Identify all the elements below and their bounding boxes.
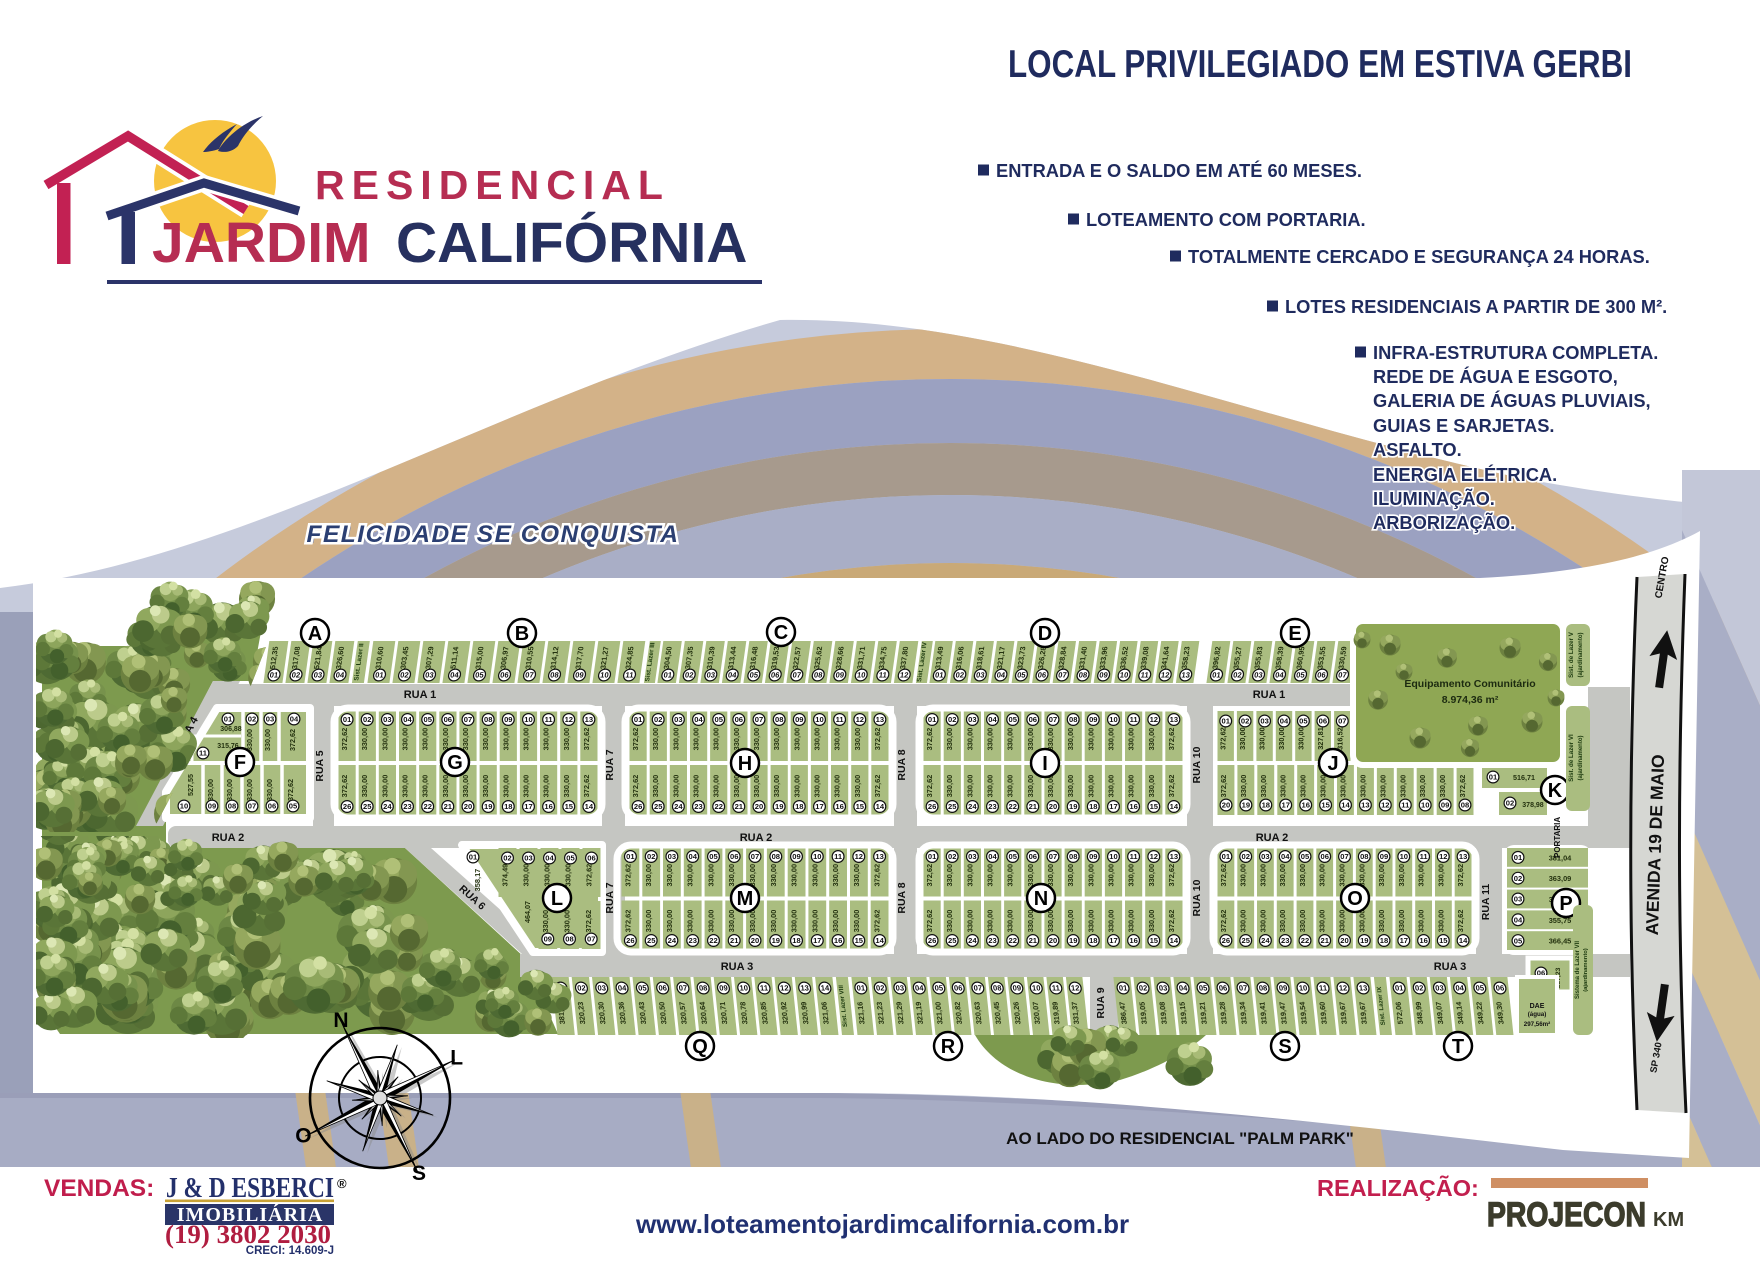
svg-text:01: 01 (224, 715, 233, 724)
svg-text:20: 20 (1222, 801, 1230, 810)
svg-text:19: 19 (1069, 936, 1077, 945)
svg-text:04: 04 (545, 854, 554, 863)
svg-text:330,00: 330,00 (1046, 910, 1055, 933)
svg-text:330,00: 330,00 (831, 910, 840, 933)
svg-text:330,00: 330,00 (245, 779, 254, 801)
svg-text:18: 18 (795, 802, 803, 811)
svg-text:R: R (941, 1036, 956, 1058)
svg-text:ENERGIA ELÉTRICA.: ENERGIA ELÉTRICA. (1373, 464, 1557, 485)
svg-text:03: 03 (425, 671, 435, 680)
svg-text:01: 01 (928, 852, 937, 861)
svg-text:372,62: 372,62 (631, 775, 640, 798)
svg-text:02: 02 (1241, 717, 1249, 726)
svg-text:06: 06 (587, 854, 595, 863)
svg-text:RUA 9: RUA 9 (1095, 987, 1107, 1018)
svg-text:02: 02 (400, 671, 410, 680)
svg-text:10: 10 (1032, 984, 1041, 993)
svg-text:Sistema de Lazer VII: Sistema de Lazer VII (1575, 941, 1581, 999)
svg-text:330,00: 330,00 (1239, 775, 1248, 798)
svg-text:330,00: 330,00 (1046, 864, 1055, 887)
svg-text:09: 09 (1380, 852, 1388, 861)
svg-text:04: 04 (988, 852, 997, 861)
svg-text:330,00: 330,00 (1107, 910, 1116, 933)
svg-text:330,00: 330,00 (522, 775, 531, 798)
svg-text:12: 12 (1150, 852, 1158, 861)
svg-text:330,00: 330,00 (986, 864, 995, 887)
svg-text:07: 07 (751, 852, 759, 861)
svg-text:09: 09 (1089, 852, 1097, 861)
svg-text:10: 10 (1109, 852, 1117, 861)
svg-text:07: 07 (678, 984, 687, 993)
svg-text:03: 03 (975, 671, 985, 680)
svg-text:18: 18 (1380, 936, 1388, 945)
svg-text:330,00: 330,00 (1046, 728, 1055, 751)
svg-text:14: 14 (1341, 801, 1350, 810)
svg-text:330,00: 330,00 (1357, 910, 1366, 933)
svg-text:02: 02 (948, 715, 956, 724)
svg-text:330,00: 330,00 (1026, 864, 1035, 887)
svg-text:17: 17 (815, 802, 823, 811)
svg-text:330,00: 330,00 (461, 728, 470, 751)
svg-text:372,62: 372,62 (1167, 728, 1176, 751)
svg-text:13: 13 (585, 715, 593, 724)
svg-text:330,00: 330,00 (727, 910, 736, 933)
svg-text:06: 06 (1037, 671, 1047, 680)
svg-text:11: 11 (1420, 852, 1429, 861)
svg-text:17: 17 (1400, 936, 1408, 945)
svg-text:E: E (1288, 623, 1301, 645)
svg-text:S: S (1278, 1036, 1291, 1058)
svg-text:20: 20 (755, 802, 763, 811)
svg-text:19: 19 (772, 936, 780, 945)
svg-text:330,00: 330,00 (665, 864, 674, 887)
svg-text:05: 05 (709, 852, 718, 861)
svg-text:09: 09 (1012, 984, 1021, 993)
svg-text:19: 19 (484, 802, 492, 811)
svg-text:N: N (1034, 888, 1048, 910)
svg-text:330,00: 330,00 (732, 728, 741, 751)
svg-text:08: 08 (1078, 671, 1088, 680)
svg-text:330,00: 330,00 (1147, 910, 1156, 933)
svg-text:372,62: 372,62 (623, 910, 632, 933)
svg-text:13: 13 (875, 852, 883, 861)
svg-text:330,00: 330,00 (1127, 864, 1136, 887)
svg-text:330,00: 330,00 (1006, 775, 1015, 798)
svg-text:REALIZAÇÃO:: REALIZAÇÃO: (1317, 1174, 1479, 1201)
svg-text:17: 17 (1109, 936, 1117, 945)
svg-text:04: 04 (1280, 717, 1289, 726)
svg-text:330,00: 330,00 (1258, 727, 1267, 750)
svg-text:330,00: 330,00 (1318, 864, 1327, 887)
svg-text:17: 17 (1109, 802, 1117, 811)
svg-text:RUA 1: RUA 1 (1253, 689, 1286, 701)
svg-text:CALIFÓRNIA: CALIFÓRNIA (396, 211, 747, 275)
svg-text:372,62: 372,62 (873, 728, 882, 751)
svg-text:02: 02 (363, 715, 371, 724)
svg-text:12: 12 (565, 715, 573, 724)
svg-text:378,98: 378,98 (1522, 802, 1544, 809)
svg-text:11: 11 (1130, 852, 1139, 861)
svg-text:372,62: 372,62 (1219, 727, 1228, 750)
svg-text:330,00: 330,00 (1338, 910, 1347, 933)
svg-text:330,00: 330,00 (1238, 727, 1247, 750)
svg-text:15: 15 (565, 802, 574, 811)
svg-text:10: 10 (1298, 984, 1307, 993)
svg-text:330,00: 330,00 (831, 864, 840, 887)
svg-text:372,62: 372,62 (340, 775, 349, 798)
svg-text:04: 04 (403, 715, 412, 724)
svg-text:07: 07 (1338, 717, 1346, 726)
svg-text:13: 13 (1459, 852, 1467, 861)
svg-text:B: B (515, 623, 529, 645)
svg-text:330,00: 330,00 (543, 864, 552, 887)
svg-text:330,00: 330,00 (522, 864, 531, 887)
svg-text:14: 14 (876, 802, 885, 811)
svg-text:372,62: 372,62 (873, 910, 882, 933)
svg-text:11: 11 (1401, 801, 1410, 810)
svg-text:08: 08 (698, 984, 707, 993)
svg-text:330,00: 330,00 (1026, 728, 1035, 751)
svg-text:330,00: 330,00 (748, 910, 757, 933)
svg-text:330,00: 330,00 (790, 910, 799, 933)
svg-text:01: 01 (626, 852, 635, 861)
svg-text:(ajardinamento): (ajardinamento) (1578, 632, 1584, 677)
svg-text:02: 02 (876, 984, 885, 993)
svg-text:C: C (774, 622, 788, 644)
svg-text:330,00: 330,00 (541, 910, 550, 933)
svg-text:330,00: 330,00 (1418, 775, 1427, 798)
svg-text:330,00: 330,00 (707, 864, 716, 887)
svg-text:20: 20 (751, 936, 759, 945)
svg-text:330,00: 330,00 (965, 775, 974, 798)
svg-text:330,00: 330,00 (1107, 864, 1116, 887)
svg-text:20: 20 (1049, 802, 1057, 811)
svg-text:08: 08 (550, 671, 560, 680)
svg-text:06: 06 (954, 984, 963, 993)
svg-text:LOCAL PRIVILEGIADO EM ESTIVA G: LOCAL PRIVILEGIADO EM ESTIVA GERBI (1008, 43, 1632, 86)
svg-text:330,00: 330,00 (665, 910, 674, 933)
svg-text:330,00: 330,00 (1086, 910, 1095, 933)
svg-text:372,62: 372,62 (925, 864, 934, 887)
svg-text:S: S (412, 1162, 426, 1185)
svg-text:330,00: 330,00 (1319, 775, 1328, 798)
svg-text:05: 05 (1008, 852, 1017, 861)
svg-text:14: 14 (1170, 802, 1179, 811)
svg-text:10: 10 (815, 715, 823, 724)
svg-text:330,00: 330,00 (752, 775, 761, 798)
svg-text:(ajardinamento): (ajardinamento) (1583, 948, 1589, 992)
svg-text:12: 12 (1439, 852, 1447, 861)
svg-text:05: 05 (289, 802, 298, 811)
svg-text:12: 12 (855, 852, 863, 861)
svg-text:06: 06 (1029, 852, 1037, 861)
svg-text:06: 06 (444, 715, 452, 724)
svg-text:LOTES RESIDENCIAIS A PARTIR DE: LOTES RESIDENCIAIS A PARTIR DE 300 M². (1285, 296, 1667, 317)
svg-text:25: 25 (654, 802, 663, 811)
svg-text:K: K (1548, 780, 1563, 802)
svg-text:17: 17 (1281, 801, 1289, 810)
svg-text:08: 08 (813, 671, 823, 680)
svg-text:07: 07 (1058, 671, 1068, 680)
svg-text:02: 02 (1241, 852, 1249, 861)
svg-text:07: 07 (1238, 984, 1247, 993)
svg-text:330,00: 330,00 (1258, 864, 1267, 887)
svg-text:330,00: 330,00 (563, 910, 572, 933)
svg-text:G: G (447, 752, 463, 774)
svg-text:330,00: 330,00 (401, 775, 410, 798)
svg-text:330,00: 330,00 (564, 864, 573, 887)
svg-text:10: 10 (1400, 852, 1408, 861)
svg-text:330,00: 330,00 (1279, 775, 1288, 798)
svg-text:I: I (1042, 753, 1048, 775)
svg-text:07: 07 (1049, 852, 1057, 861)
svg-text:330,00: 330,00 (748, 864, 757, 887)
svg-text:01: 01 (928, 715, 937, 724)
svg-text:05: 05 (714, 715, 723, 724)
svg-text:01: 01 (1221, 717, 1230, 726)
svg-text:330,00: 330,00 (686, 864, 695, 887)
svg-text:RUA 8: RUA 8 (896, 749, 908, 780)
svg-text:372,62: 372,62 (631, 728, 640, 751)
svg-text:14: 14 (585, 802, 594, 811)
svg-text:23: 23 (988, 936, 996, 945)
svg-text:05: 05 (1299, 717, 1308, 726)
svg-text:15: 15 (1321, 801, 1330, 810)
svg-text:330,00: 330,00 (651, 728, 660, 751)
svg-text:ASFALTO.: ASFALTO. (1373, 439, 1462, 460)
svg-text:24: 24 (674, 802, 683, 811)
svg-text:P: P (1559, 893, 1572, 915)
svg-text:KM: KM (1653, 1209, 1684, 1231)
svg-text:10: 10 (1109, 715, 1117, 724)
svg-text:372,62: 372,62 (1456, 910, 1465, 933)
svg-text:JARDIM: JARDIM (152, 211, 371, 275)
svg-text:330,00: 330,00 (1296, 727, 1305, 750)
svg-text:12: 12 (856, 715, 864, 724)
svg-text:12: 12 (780, 984, 789, 993)
svg-text:15: 15 (855, 936, 864, 945)
svg-text:10: 10 (856, 671, 866, 680)
svg-text:GALERIA DE ÁGUAS PLUVIAIS,: GALERIA DE ÁGUAS PLUVIAIS, (1373, 390, 1651, 411)
svg-text:330,00: 330,00 (1397, 910, 1406, 933)
svg-text:330,00: 330,00 (712, 775, 721, 798)
svg-text:04: 04 (290, 715, 299, 724)
svg-text:330,00: 330,00 (206, 779, 215, 801)
svg-text:10: 10 (813, 852, 821, 861)
svg-text:03: 03 (1158, 984, 1167, 993)
svg-text:FELICIDADE SE CONQUISTA: FELICIDADE SE CONQUISTA (307, 521, 680, 548)
svg-text:02: 02 (684, 671, 694, 680)
svg-text:08: 08 (775, 715, 783, 724)
svg-text:22: 22 (423, 802, 431, 811)
svg-text:19: 19 (1069, 802, 1077, 811)
svg-text:17: 17 (813, 936, 821, 945)
svg-text:08: 08 (1258, 984, 1267, 993)
svg-text:366,45: 366,45 (1549, 937, 1572, 946)
svg-text:330,00: 330,00 (562, 728, 571, 751)
svg-text:20: 20 (1340, 936, 1348, 945)
svg-text:12: 12 (1071, 984, 1080, 993)
svg-text:06: 06 (1495, 984, 1504, 993)
svg-text:14: 14 (1170, 936, 1179, 945)
svg-text:01: 01 (343, 715, 352, 724)
svg-text:24: 24 (383, 802, 392, 811)
svg-text:330,00: 330,00 (1239, 864, 1248, 887)
svg-text:L: L (551, 888, 563, 910)
svg-text:24: 24 (668, 936, 677, 945)
svg-text:372,62: 372,62 (286, 779, 295, 801)
svg-text:25: 25 (948, 802, 957, 811)
svg-text:306,88: 306,88 (220, 726, 242, 733)
svg-text:09: 09 (835, 671, 845, 680)
svg-text:330,00: 330,00 (501, 728, 510, 751)
svg-text:RUA 3: RUA 3 (721, 961, 754, 973)
svg-text:J: J (1327, 753, 1338, 775)
svg-text:09: 09 (795, 715, 803, 724)
svg-text:13: 13 (876, 715, 884, 724)
svg-text:330,00: 330,00 (1278, 864, 1287, 887)
svg-text:330,00: 330,00 (813, 728, 822, 751)
svg-text:23: 23 (1281, 936, 1289, 945)
svg-text:372,62: 372,62 (1167, 910, 1176, 933)
svg-text:330,00: 330,00 (1318, 910, 1327, 933)
svg-text:330,00: 330,00 (769, 864, 778, 887)
svg-text:O: O (1347, 888, 1363, 910)
svg-text:(água): (água) (1528, 1011, 1547, 1018)
svg-text:372,62: 372,62 (873, 775, 882, 798)
svg-text:07: 07 (587, 935, 595, 944)
svg-text:03: 03 (1435, 984, 1444, 993)
svg-text:19: 19 (1242, 801, 1250, 810)
svg-text:TOTALMENTE CERCADO E SEGURANÇA: TOTALMENTE CERCADO E SEGURANÇA 24 HORAS. (1188, 246, 1650, 267)
svg-text:07: 07 (755, 715, 763, 724)
svg-text:330,00: 330,00 (1436, 910, 1445, 933)
svg-text:12: 12 (1150, 715, 1158, 724)
svg-text:04: 04 (688, 852, 697, 861)
svg-text:02: 02 (248, 715, 256, 724)
svg-text:08: 08 (1461, 801, 1469, 810)
svg-text:02: 02 (577, 984, 586, 993)
svg-text:330,00: 330,00 (481, 728, 490, 751)
svg-text:03: 03 (968, 715, 976, 724)
svg-text:02: 02 (1415, 984, 1424, 993)
svg-text:01: 01 (1514, 853, 1523, 862)
svg-text:21: 21 (444, 802, 453, 811)
svg-text:330,00: 330,00 (945, 728, 954, 751)
svg-text:Sist. de Lazer V: Sist. de Lazer V (1568, 631, 1575, 678)
svg-text:04: 04 (1281, 852, 1290, 861)
svg-text:06: 06 (500, 671, 510, 680)
svg-text:11: 11 (199, 749, 208, 758)
svg-text:25: 25 (1241, 936, 1250, 945)
svg-text:19: 19 (1360, 936, 1368, 945)
svg-text:330,00: 330,00 (752, 728, 761, 751)
svg-text:330,00: 330,00 (945, 864, 954, 887)
svg-text:330,00: 330,00 (792, 728, 801, 751)
svg-text:05: 05 (1008, 715, 1017, 724)
svg-text:03: 03 (968, 852, 976, 861)
svg-text:372,62: 372,62 (582, 775, 591, 798)
svg-text:330,00: 330,00 (1438, 775, 1447, 798)
svg-text:26: 26 (343, 802, 351, 811)
svg-text:02: 02 (955, 671, 965, 680)
svg-text:18: 18 (792, 936, 800, 945)
svg-text:RUA 5: RUA 5 (314, 750, 326, 781)
svg-text:330,00: 330,00 (1377, 910, 1386, 933)
svg-text:330,00: 330,00 (945, 775, 954, 798)
svg-text:AO LADO DO RESIDENCIAL "PALM P: AO LADO DO RESIDENCIAL "PALM PARK" (1006, 1129, 1354, 1148)
svg-text:03: 03 (524, 854, 532, 863)
svg-text:09: 09 (1441, 801, 1449, 810)
svg-text:J & D ESBERCI: J & D ESBERCI (166, 1173, 334, 1204)
svg-text:372,62: 372,62 (288, 729, 297, 751)
svg-text:330,00: 330,00 (707, 910, 716, 933)
svg-text:330,00: 330,00 (1298, 864, 1307, 887)
svg-text:330,00: 330,00 (1086, 775, 1095, 798)
svg-text:07: 07 (792, 671, 802, 680)
svg-text:330,00: 330,00 (501, 775, 510, 798)
svg-text:17: 17 (524, 802, 532, 811)
svg-text:330,00: 330,00 (965, 728, 974, 751)
svg-text:LOTEAMENTO COM PORTARIA.: LOTEAMENTO COM PORTARIA. (1086, 209, 1366, 230)
svg-text:21: 21 (730, 936, 739, 945)
svg-text:330,00: 330,00 (421, 728, 430, 751)
svg-text:RUA 10: RUA 10 (1191, 879, 1203, 916)
svg-text:372,62: 372,62 (340, 728, 349, 751)
svg-text:13: 13 (1181, 671, 1191, 680)
svg-text:RUA 8: RUA 8 (896, 882, 908, 913)
svg-text:T: T (1452, 1036, 1464, 1058)
svg-text:330,00: 330,00 (1066, 910, 1075, 933)
svg-text:10: 10 (600, 671, 610, 680)
svg-text:08: 08 (1069, 715, 1077, 724)
svg-text:03: 03 (895, 984, 904, 993)
svg-text:07: 07 (464, 715, 472, 724)
svg-text:N: N (333, 1009, 348, 1032)
svg-text:330,00: 330,00 (833, 775, 842, 798)
svg-text:330,00: 330,00 (732, 775, 741, 798)
svg-text:Sist. de Lazer VI: Sist. de Lazer VI (1568, 734, 1575, 782)
svg-text:PORTARIA: PORTARIA (1553, 817, 1562, 858)
svg-text:24: 24 (968, 802, 977, 811)
svg-text:06: 06 (1319, 717, 1327, 726)
svg-text:11: 11 (1130, 715, 1139, 724)
svg-text:10: 10 (1421, 801, 1429, 810)
svg-text:INFRA-ESTRUTURA COMPLETA.: INFRA-ESTRUTURA COMPLETA. (1373, 342, 1658, 363)
svg-text:21: 21 (1029, 936, 1038, 945)
svg-text:464,07: 464,07 (523, 901, 532, 923)
svg-text:330,00: 330,00 (1006, 728, 1015, 751)
svg-text:RUA 1: RUA 1 (404, 689, 437, 701)
svg-text:330,00: 330,00 (441, 775, 450, 798)
svg-text:06: 06 (735, 715, 743, 724)
svg-text:10: 10 (1119, 671, 1129, 680)
svg-text:16: 16 (1419, 936, 1427, 945)
svg-text:330,00: 330,00 (792, 775, 801, 798)
svg-text:06: 06 (268, 802, 276, 811)
svg-text:21: 21 (735, 802, 744, 811)
svg-text:330,00: 330,00 (360, 775, 369, 798)
svg-text:12: 12 (899, 671, 909, 680)
svg-text:09: 09 (792, 852, 800, 861)
svg-text:22: 22 (714, 802, 722, 811)
svg-text:RESIDENCIAL: RESIDENCIAL (315, 162, 670, 208)
svg-text:330,00: 330,00 (1066, 775, 1075, 798)
svg-text:330,00: 330,00 (671, 728, 680, 751)
svg-text:22: 22 (1008, 802, 1016, 811)
svg-text:330,00: 330,00 (1299, 775, 1308, 798)
svg-text:330,00: 330,00 (651, 775, 660, 798)
